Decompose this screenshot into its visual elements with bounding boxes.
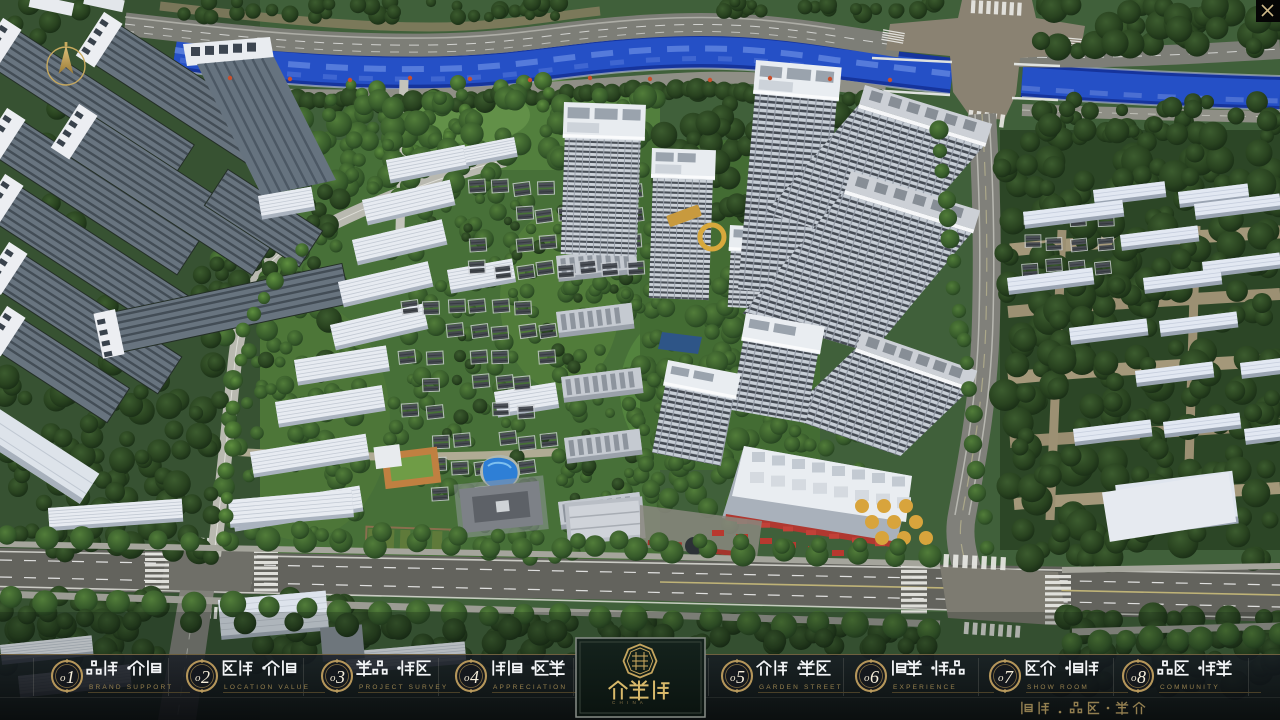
svg-text:8: 8 (1137, 667, 1146, 687)
svg-text:2: 2 (201, 667, 210, 687)
svg-text:COMMUNITY: COMMUNITY (1160, 684, 1220, 691)
svg-text:GARDEN STREET: GARDEN STREET (759, 684, 843, 691)
svg-text:SHOW ROOM: SHOW ROOM (1027, 684, 1089, 691)
svg-text:6: 6 (870, 667, 879, 687)
svg-text:LOCATION VALUE: LOCATION VALUE (224, 684, 310, 691)
svg-text:5: 5 (736, 667, 745, 687)
svg-text:C H I N A: C H I N A (612, 700, 644, 705)
svg-text:4: 4 (470, 667, 479, 687)
svg-text:7: 7 (1004, 667, 1014, 687)
svg-text:BRAND SUPPORT: BRAND SUPPORT (89, 684, 173, 691)
svg-text:PROJECT SURVEY: PROJECT SURVEY (359, 684, 448, 691)
svg-text:EXPERIENCE: EXPERIENCE (893, 684, 957, 691)
svg-text:APPRECIATION: APPRECIATION (493, 684, 567, 691)
svg-text:3: 3 (335, 667, 345, 687)
svg-text:1: 1 (66, 667, 75, 687)
